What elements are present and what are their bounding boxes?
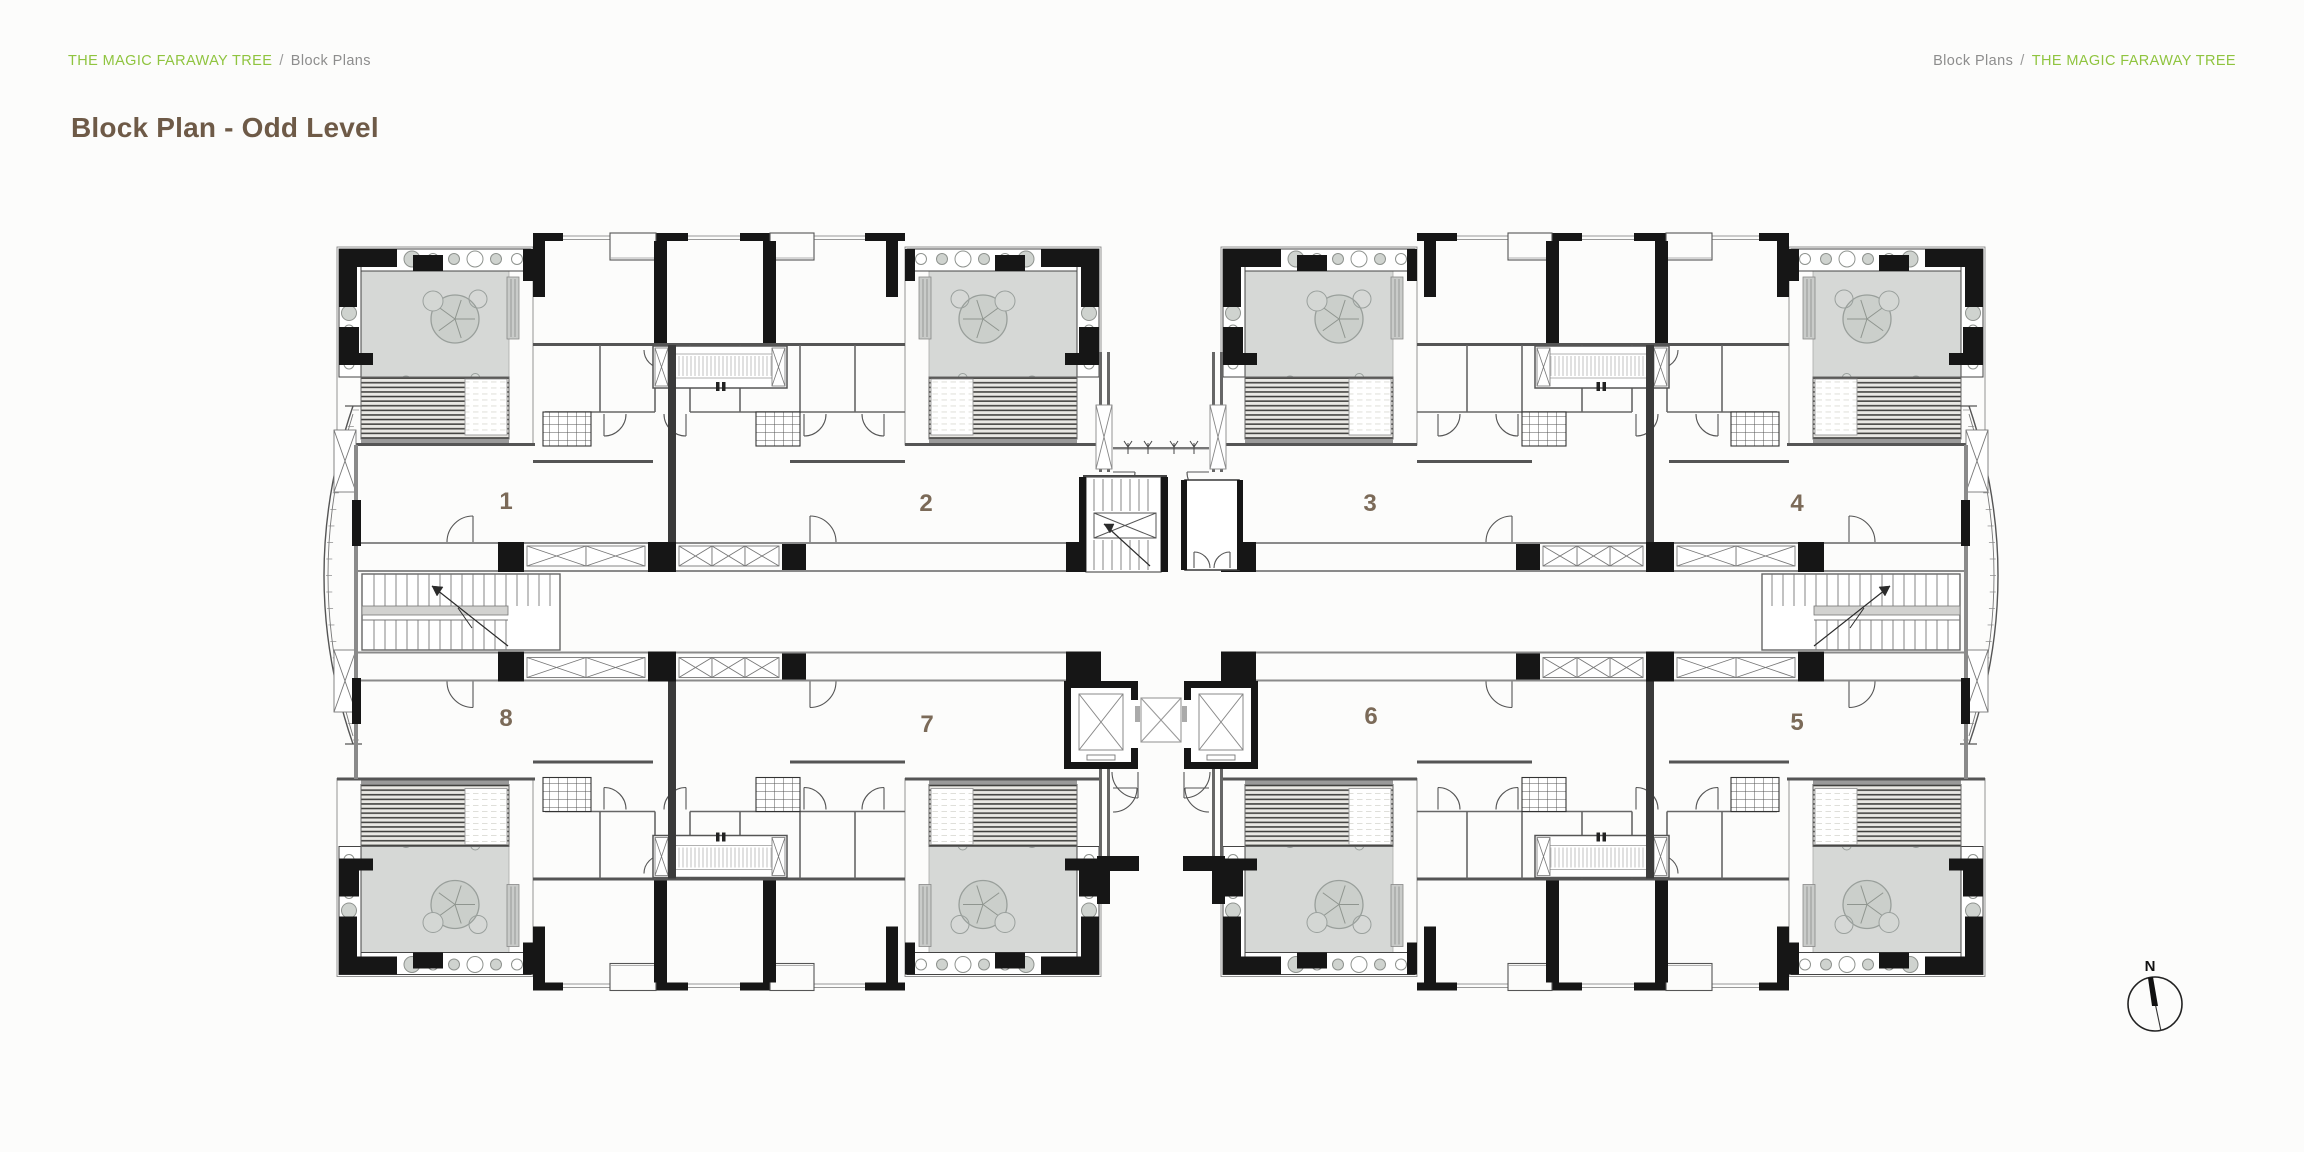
plan-right-half	[1161, 233, 1998, 991]
unit-number-2: 2	[919, 490, 932, 517]
terrace	[1789, 247, 1985, 445]
floor-plan: 12348765N	[0, 0, 2304, 1152]
unit-number-8: 8	[499, 705, 512, 732]
unit-number-7: 7	[920, 711, 933, 738]
unit-number-5: 5	[1790, 709, 1803, 736]
stairs	[362, 574, 560, 650]
terrace	[905, 779, 1101, 977]
north-compass: N	[2128, 958, 2182, 1031]
terrace	[337, 247, 533, 445]
terrace	[1789, 779, 1985, 977]
core-stairwell	[1079, 475, 1243, 572]
terrace	[1221, 247, 1417, 445]
unit-number-6: 6	[1364, 703, 1377, 730]
terrace	[1221, 779, 1417, 977]
north-label: N	[2145, 958, 2156, 975]
plan-left-half	[324, 233, 1161, 991]
unit-number-4: 4	[1790, 490, 1804, 517]
terrace	[337, 779, 533, 977]
unit-number-3: 3	[1363, 490, 1376, 517]
terrace	[905, 247, 1101, 445]
stairs	[1762, 574, 1960, 650]
unit-number-1: 1	[499, 488, 512, 515]
